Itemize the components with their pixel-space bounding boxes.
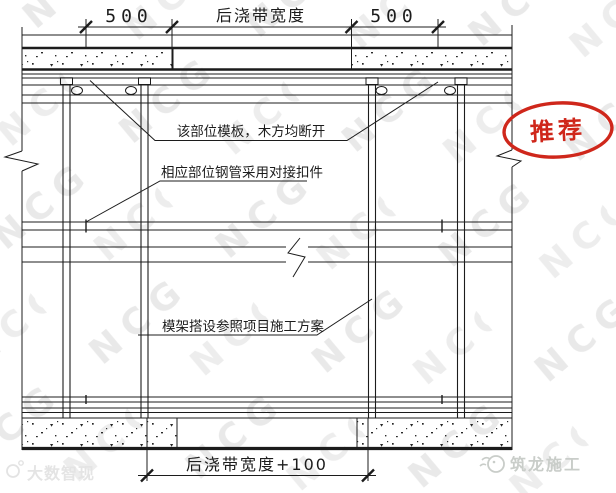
- post-cast-strip-formwork-drawing: NCG NCG: [0, 0, 616, 493]
- bottom-slab-concrete-right: [357, 419, 512, 447]
- bottom-slab-concrete-left: [22, 419, 177, 447]
- dim-label-bottom: 后浇带宽度+100: [186, 455, 328, 474]
- annotation-coupler: 相应部位钢管采用对接扣件: [161, 164, 323, 181]
- dim-label-500-right: 500: [370, 6, 418, 27]
- drawing-svg: NCG NCG: [0, 0, 616, 493]
- top-slab-concrete-left: [22, 50, 173, 68]
- dim-label-strip-width: 后浇带宽度: [216, 6, 306, 25]
- stamp-label: 推荐: [529, 116, 586, 147]
- top-slab-concrete-right: [352, 50, 512, 68]
- left-logo-text: 大数智现: [27, 464, 95, 483]
- right-logo-text: 筑龙施工: [510, 455, 582, 474]
- annotation-scheme: 模架搭设参照项目施工方案: [162, 318, 324, 335]
- annotation-formwork: 该部位模板，木方均断开: [177, 124, 326, 140]
- dim-label-500-left: 500: [105, 6, 153, 27]
